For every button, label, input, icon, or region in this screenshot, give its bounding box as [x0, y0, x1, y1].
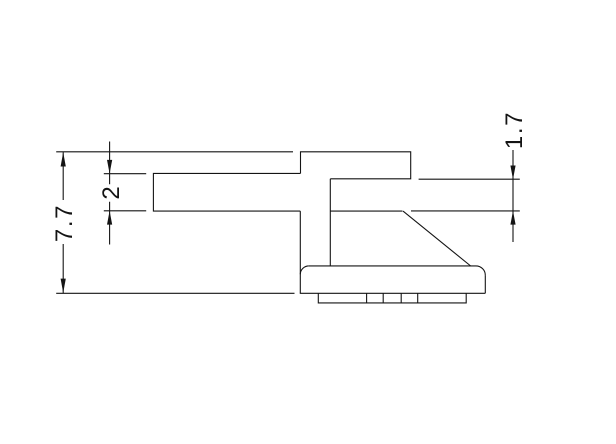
svg-text:2: 2 [98, 186, 125, 199]
svg-text:7.7: 7.7 [51, 204, 78, 242]
svg-text:1.7: 1.7 [501, 111, 528, 149]
